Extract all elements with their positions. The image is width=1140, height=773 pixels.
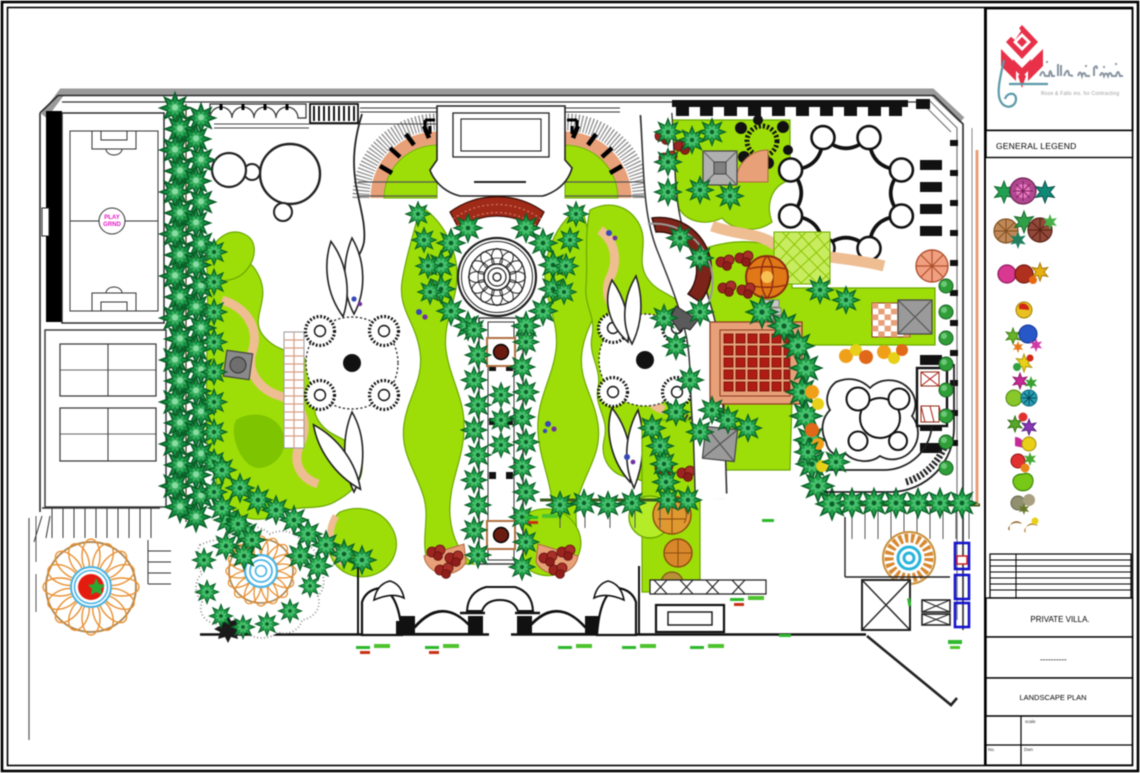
svg-text:PLAY: PLAY [104,215,119,221]
svg-text:LANDSCAPE PLAN: LANDSCAPE PLAN [1019,693,1086,702]
svg-text:GENERAL LEGEND: GENERAL LEGEND [996,141,1076,151]
svg-text:scale: scale [1025,719,1036,724]
svg-text:GRND: GRND [103,222,121,228]
svg-text:----------: ---------- [1040,655,1067,664]
svg-text:Rose & Falls ins. for Contract: Rose & Falls ins. for Contracting [1041,91,1119,97]
svg-text:Dwn: Dwn [1024,747,1033,752]
svg-text:No.: No. [988,747,995,752]
svg-text:PRIVATE VILLA.: PRIVATE VILLA. [1030,615,1089,624]
